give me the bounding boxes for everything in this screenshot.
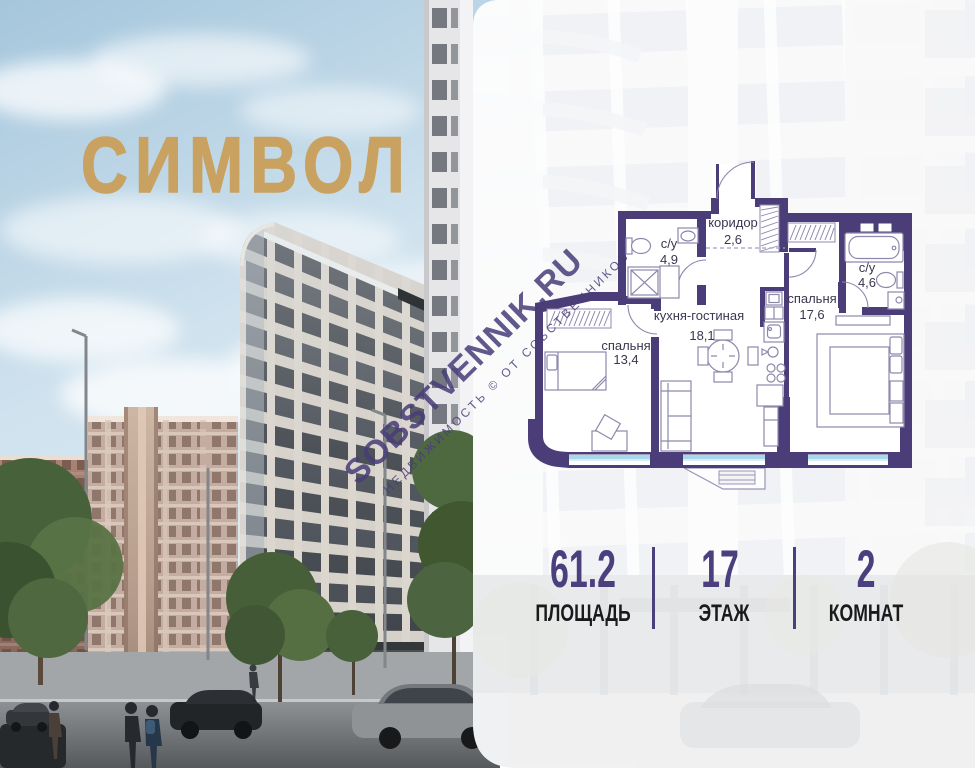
svg-text:спальня: спальня (787, 291, 836, 306)
svg-text:2: 2 (857, 541, 876, 599)
svg-text:17: 17 (701, 541, 739, 599)
svg-text:КОМНАТ: КОМНАТ (829, 599, 903, 627)
svg-text:4,6: 4,6 (858, 275, 876, 290)
svg-text:ЭТАЖ: ЭТАЖ (699, 599, 750, 627)
svg-text:61.2: 61.2 (550, 541, 616, 599)
svg-text:18,1: 18,1 (689, 328, 714, 343)
svg-text:2,6: 2,6 (724, 232, 742, 247)
svg-text:с/у: с/у (661, 236, 678, 251)
svg-text:13,4: 13,4 (613, 352, 638, 367)
svg-text:коридор: коридор (708, 215, 758, 230)
svg-text:спальня: спальня (601, 338, 650, 353)
svg-text:4,9: 4,9 (660, 252, 678, 267)
svg-text:17,6: 17,6 (799, 307, 824, 322)
svg-text:с/у: с/у (859, 260, 876, 275)
svg-text:ПЛОЩАДЬ: ПЛОЩАДЬ (535, 599, 630, 627)
svg-text:СИМВОЛ: СИМВОЛ (81, 122, 412, 209)
svg-text:кухня-гостиная: кухня-гостиная (654, 308, 744, 323)
